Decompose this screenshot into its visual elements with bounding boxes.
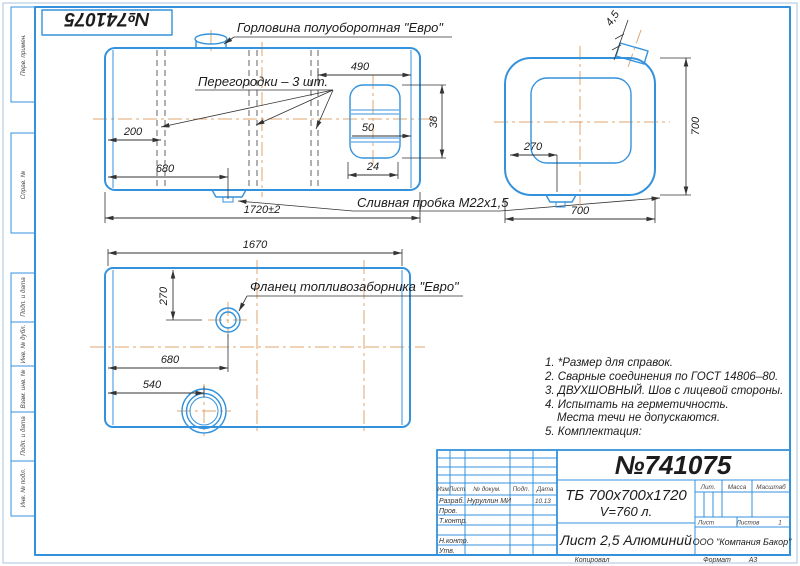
engineering-drawing-canvas: Перв. примен. Справ. № Подп. и дата Инв.… [0, 0, 800, 566]
dim-490: 490 [351, 61, 370, 73]
notes-block: 1. *Размер для справок. 2. Сварные соеди… [544, 357, 783, 438]
dim-50: 50 [362, 122, 375, 134]
col-list: Лист [448, 486, 465, 493]
margin-label-podp-data-2: Подп. и дата [19, 416, 27, 456]
top-stamp: №741075 [42, 8, 172, 35]
note-2: 2. Сварные соединения по ГОСТ 14806–80. [544, 371, 778, 383]
dim-270-bottom: 270 [158, 286, 170, 306]
row-nkontr: Н.контр. [439, 538, 469, 545]
margin-label-inv-podl: Инв. № подл. [19, 468, 27, 507]
sheets-label: Листов [736, 520, 761, 527]
row-utv: Утв. [438, 548, 455, 555]
drawing-sheet: Перв. примен. Справ. № Подп. и дата Инв.… [0, 0, 800, 566]
doc-material: Лист 2,5 Алюминий [559, 532, 692, 548]
title-block: №741075 ТБ 700х700х1720 V=760 л. Лист 2,… [437, 450, 792, 564]
margin-label-inv-dubl: Инв. № дубл. [19, 325, 27, 364]
note-4: 4. Испытать на герметичность. [545, 399, 729, 411]
col-doc: № докум. [473, 485, 501, 493]
row-razrab: Разраб. [439, 497, 464, 505]
row-prov: Пров. [439, 508, 458, 515]
flange-callout: Фланец топливозаборника "Евро" [250, 279, 460, 294]
recess-detail [350, 85, 400, 158]
format-value: А3 [748, 557, 758, 564]
note-5: 5. Комплектация: [545, 426, 642, 438]
end-view: 700 700 270 4,5 [494, 8, 702, 223]
dim-680-bottom: 680 [161, 354, 180, 366]
header-massa: Масса [728, 484, 747, 491]
note-1: 1. *Размер для справок. [545, 357, 673, 369]
dim-38: 38 [428, 115, 440, 128]
dim-700-width: 700 [571, 205, 590, 217]
neck-callout: Горловина полуоборотная "Евро" [237, 20, 444, 35]
dim-680-front: 680 [156, 163, 175, 175]
sheet-label: Лист [697, 520, 714, 527]
dim-270-end: 270 [523, 141, 543, 153]
doc-designation: ТБ 700х700х1720 [565, 487, 687, 504]
bottom-view: 1670 270 680 540 Фланец топливозаборника… [90, 239, 463, 436]
format-label: Формат [703, 557, 731, 564]
partitions-callout: Перегородки – 3 шт. [198, 74, 328, 89]
dim-540: 540 [143, 379, 162, 391]
margin-label-perv-primen: Перв. примен. [20, 34, 27, 76]
dim-700-height: 700 [690, 116, 702, 135]
col-podp: Подп. [513, 485, 530, 493]
tank-end-inner [531, 78, 631, 163]
margin-column: Перв. примен. Справ. № Подп. и дата Инв.… [11, 7, 35, 516]
bottom-callouts: Фланец топливозаборника "Евро" [239, 279, 463, 311]
margin-label-podp-data-1: Подп. и дата [19, 277, 27, 317]
end-dimensions: 700 700 270 4,5 [505, 8, 702, 223]
dim-1720: 1720±2 [244, 204, 281, 216]
doc-number: №741075 [615, 450, 732, 480]
neck-end-view [616, 43, 648, 64]
drain-callout: Сливная пробка М22х1,5 [357, 195, 509, 210]
row-tkontr: Т.контр. [439, 518, 467, 525]
note-3: 3. ДВУХШОВНЫЙ. Шов с лицевой стороны. [545, 384, 783, 397]
dim-4-5-wall: 4,5 [604, 8, 623, 28]
dim-1670: 1670 [243, 239, 268, 251]
copied-label: Копировал [575, 557, 610, 564]
sheets-value: 1 [778, 520, 782, 527]
margin-label-sprav: Справ. № [20, 171, 27, 200]
drain-plug-front [212, 190, 246, 202]
col-data: Дата [536, 486, 554, 493]
header-masshtab: Масштаб [756, 483, 786, 491]
dim-200: 200 [123, 126, 143, 138]
stamp-number: №741075 [64, 8, 150, 29]
note-4-cont: Места течи не допускаются. [557, 412, 720, 424]
col-izm: Изм [437, 486, 449, 493]
designer-name: Нуруллин МИ [467, 498, 512, 505]
header-lit: Лит. [700, 484, 716, 491]
bottom-dimensions: 1670 270 680 540 [108, 239, 402, 397]
designer-date: 10.13 [535, 498, 551, 505]
dim-24: 24 [366, 161, 379, 173]
doc-volume: V=760 л. [600, 504, 653, 519]
company-name: ООО "Компания Бакор" [693, 537, 793, 547]
margin-label-vzam-inv: Взам. инв. № [20, 369, 27, 408]
